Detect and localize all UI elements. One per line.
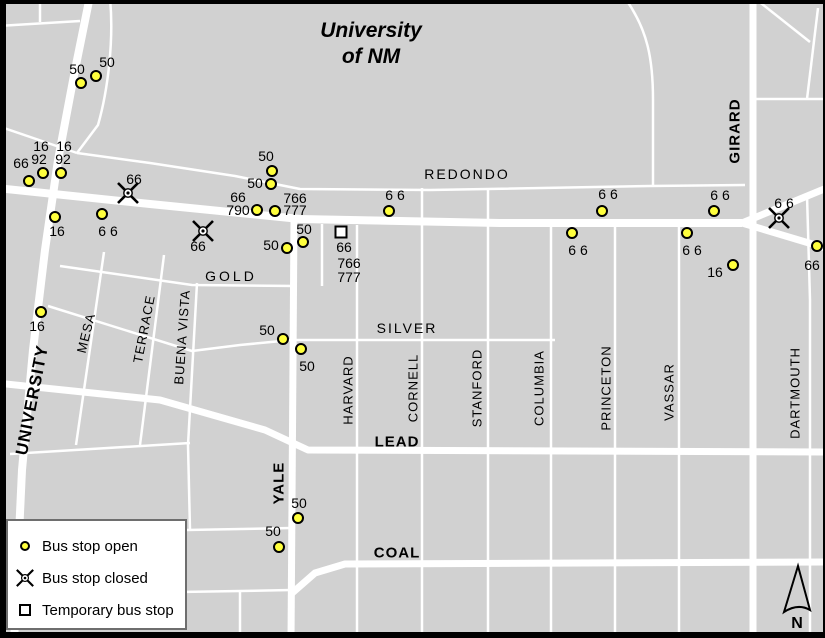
map-canvas: University of NM REDONDOGOLDSILVERLEADCO…: [0, 0, 825, 638]
legend-temporary-stop-icon: [8, 604, 42, 616]
legend-open-stop-icon: [8, 541, 42, 551]
map-frame-left: [0, 0, 6, 638]
map-frame-bottom: [0, 632, 825, 638]
legend-closed-stop-icon: [8, 569, 42, 587]
legend-item-label: Bus stop closed: [42, 570, 148, 587]
north-label: N: [791, 615, 803, 633]
legend-item-open: Bus stop open: [8, 535, 185, 557]
legend: Bus stop openBus stop closedTemporary bu…: [6, 519, 187, 630]
legend-item-label: Bus stop open: [42, 538, 138, 555]
legend-item-closed: Bus stop closed: [8, 567, 185, 589]
legend-item-temporary: Temporary bus stop: [8, 599, 185, 621]
map-frame-top: [0, 0, 825, 4]
legend-item-label: Temporary bus stop: [42, 602, 174, 619]
